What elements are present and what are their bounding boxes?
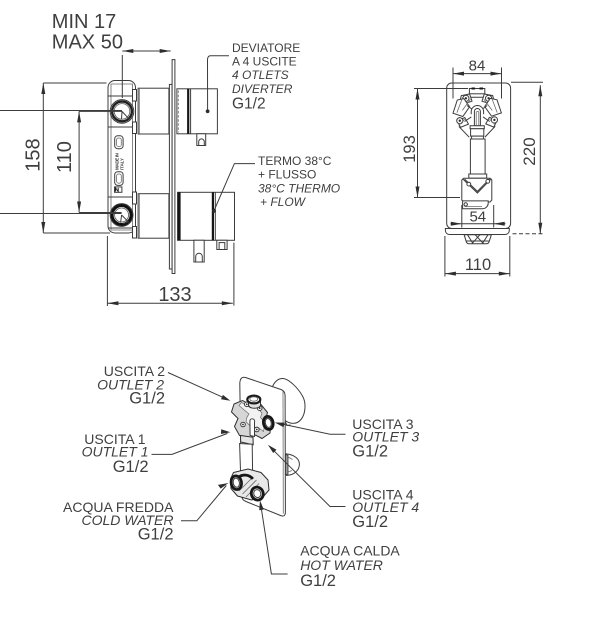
- svg-text:54: 54: [469, 209, 486, 226]
- svg-text:MIN 17: MIN 17: [52, 11, 116, 33]
- svg-text:4 OTLETS: 4 OTLETS: [232, 68, 289, 82]
- svg-text:A 4 USCITE: A 4 USCITE: [232, 55, 297, 69]
- svg-text:+ FLUSSO: + FLUSSO: [258, 168, 316, 182]
- svg-text:110: 110: [465, 256, 491, 274]
- svg-text:220: 220: [520, 137, 539, 165]
- svg-text:MAX 50: MAX 50: [52, 32, 123, 54]
- svg-text:DIVERTER: DIVERTER: [232, 82, 293, 96]
- svg-text:TERMO 38°C: TERMO 38°C: [258, 154, 332, 168]
- svg-text:ITALY: ITALY: [119, 158, 124, 170]
- svg-text:110: 110: [54, 141, 76, 173]
- svg-text:158: 158: [22, 138, 44, 171]
- svg-text:193: 193: [401, 135, 419, 163]
- svg-text:G1/2: G1/2: [129, 390, 165, 408]
- svg-text:G1/2: G1/2: [138, 526, 174, 544]
- svg-text:84: 84: [469, 57, 486, 74]
- svg-text:G1/2: G1/2: [352, 443, 388, 461]
- svg-text:G1/2: G1/2: [300, 572, 336, 590]
- svg-text:G1/2: G1/2: [352, 513, 388, 531]
- svg-text:G1/2: G1/2: [232, 96, 266, 113]
- svg-text:+ FLOW: + FLOW: [260, 195, 307, 209]
- svg-text:G1/2: G1/2: [113, 458, 149, 476]
- svg-text:38°C THERMO: 38°C THERMO: [258, 181, 340, 195]
- svg-text:DEVIATORE: DEVIATORE: [232, 41, 300, 55]
- svg-text:133: 133: [158, 284, 191, 306]
- svg-text:HOT WATER: HOT WATER: [300, 557, 383, 573]
